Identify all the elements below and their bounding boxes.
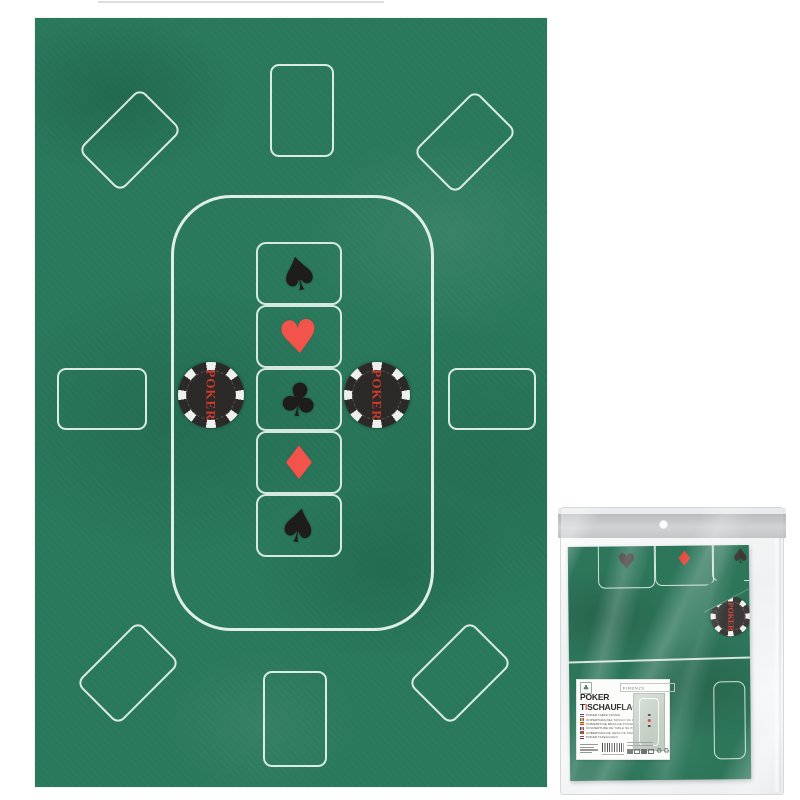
flag-icon xyxy=(580,731,584,734)
flag-icon xyxy=(580,714,584,717)
seat-diamond-top-right xyxy=(413,90,518,195)
photo-artifact-line xyxy=(98,1,384,3)
chip-core: POKER xyxy=(715,601,745,631)
folded-card-3: ♠ xyxy=(712,545,752,581)
chip-core: POKER xyxy=(352,370,402,420)
seat-rect-left xyxy=(57,368,147,430)
spade-icon: ♠ xyxy=(275,499,324,551)
seat-diamond-bottom-right xyxy=(408,621,513,726)
heart-icon: ♥ xyxy=(276,312,321,361)
seat-card-top xyxy=(270,64,334,157)
seat-card-bottom xyxy=(263,671,327,767)
chip-label: POKER xyxy=(726,602,735,631)
diamond-icon: ♦ xyxy=(278,440,319,486)
diamond-icon: ♦ xyxy=(675,549,694,570)
community-card-1: ♠ xyxy=(256,242,342,305)
flag-icon xyxy=(580,736,584,739)
folded-card-2: ♦ xyxy=(655,545,715,586)
flag-icon xyxy=(580,718,584,721)
chip-core: POKER xyxy=(186,370,236,420)
micro-text-lines xyxy=(627,742,653,747)
recycling-icon: ♻ xyxy=(663,748,669,755)
product-photo: ♠ ♥ ♣ ♦ ♠ POKER POKER xyxy=(0,0,800,800)
poker-chip-left: POKER xyxy=(178,362,244,428)
barcode xyxy=(602,743,624,752)
chip-label: POKER xyxy=(369,369,385,420)
flag-icon xyxy=(580,727,584,730)
language-list: POKER TABLE COVER COPERTURA DEL TAVOLO D… xyxy=(580,713,753,739)
language-row: POKER TAFELKLEED xyxy=(580,735,753,739)
diagram-card-column xyxy=(648,712,651,729)
seat-rect-right xyxy=(448,368,536,430)
spade-icon: ♠ xyxy=(731,546,750,567)
certification-icons: ♻ ♻ xyxy=(627,748,670,755)
fabric-fold xyxy=(694,569,749,613)
community-card-2: ♥ xyxy=(256,305,342,368)
brand-name-box: FIRENZE xyxy=(620,683,675,692)
bag-header-band xyxy=(558,514,786,538)
folded-mat-line xyxy=(569,656,750,663)
micro-text-lines xyxy=(580,744,598,755)
community-card-5: ♠ xyxy=(256,494,342,557)
poker-chip-right: POKER xyxy=(344,362,410,428)
hang-hole-icon xyxy=(659,520,668,529)
heart-icon: ♥ xyxy=(617,551,636,572)
chip-label: POKER xyxy=(203,369,219,420)
poker-mat: ♠ ♥ ♣ ♦ ♠ POKER POKER xyxy=(35,18,547,787)
club-icon: ♣ xyxy=(276,374,323,425)
product-package: ♥ ♦ ♠ POKER ♣ xyxy=(560,507,784,795)
barcode-number xyxy=(602,754,624,755)
brand-name: FIRENZE xyxy=(623,685,645,690)
community-card-3: ♣ xyxy=(256,368,342,431)
product-label: ♣ FIRENZE POKER TISCHAUFLAGE POKER TABLE… xyxy=(576,679,670,760)
spade-icon: ♠ xyxy=(274,247,324,301)
community-card-4: ♦ xyxy=(256,431,342,494)
seat-diamond-top-left xyxy=(78,88,183,193)
flag-icon xyxy=(580,722,584,725)
club-icon: ♣ xyxy=(583,685,589,692)
folded-poker-chip: POKER xyxy=(710,596,750,636)
folded-card-1: ♥ xyxy=(598,545,656,589)
recycling-icon: ♻ xyxy=(656,748,662,755)
bag-crimp-edge xyxy=(774,538,781,792)
seat-diamond-bottom-left xyxy=(76,621,181,726)
